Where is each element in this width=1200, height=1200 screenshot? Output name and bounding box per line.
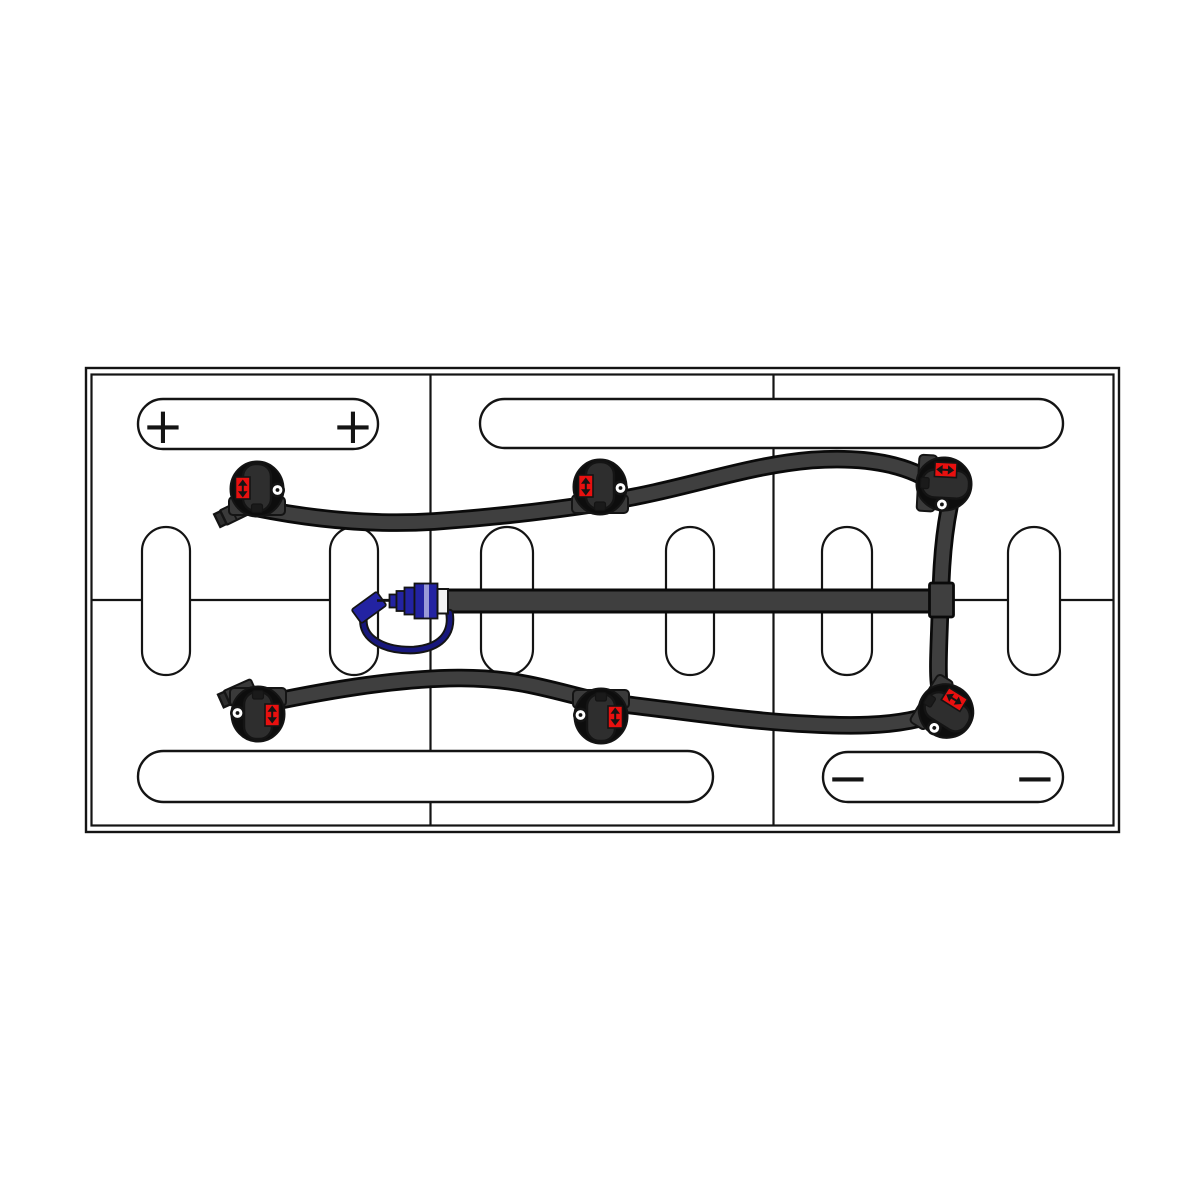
intercell-strap-bottom-left: [138, 751, 713, 802]
intercell-strap-top-right: [480, 399, 1063, 448]
coupler-step-2: [397, 591, 405, 611]
negative-terminal-symbol-2: −: [1014, 749, 1056, 807]
vent-slot-1: [142, 527, 190, 675]
coupler-body-stripe: [424, 585, 429, 618]
watering-valve-top-left: [229, 462, 285, 517]
battery-watering-diagram: + + − −: [0, 0, 1200, 1200]
positive-terminal-symbol-2: +: [332, 397, 374, 455]
negative-terminal-symbol-1: −: [827, 749, 869, 807]
vent-slot-6: [1008, 527, 1060, 675]
tee-fitting: [930, 583, 954, 617]
positive-terminal-symbol-1: +: [142, 397, 184, 455]
coupler-step-3: [405, 588, 415, 615]
coupler-step-1: [390, 595, 397, 608]
diagram-canvas: + + − −: [0, 0, 1200, 1200]
watering-valve-top-center: [572, 460, 628, 515]
watering-valve-bottom-center: [573, 689, 629, 744]
watering-valve-bottom-left: [230, 687, 286, 742]
coupler-collar: [438, 589, 449, 614]
